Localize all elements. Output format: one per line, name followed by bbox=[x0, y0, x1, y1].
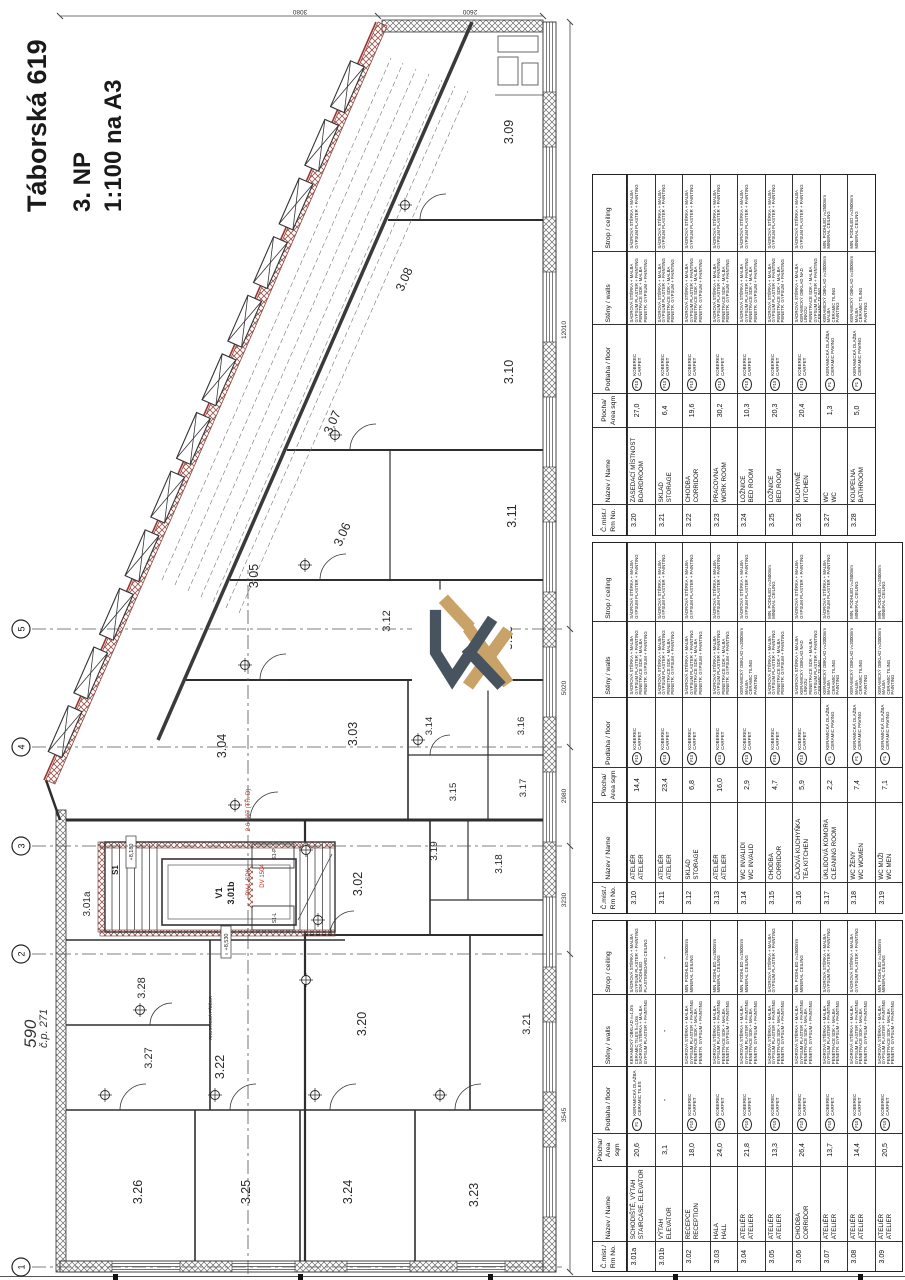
room-name-cell: ZASEDACÍ MÍSTNOSTBOARDROOM bbox=[628, 427, 655, 504]
parcel-cp: č.p. 271 bbox=[39, 1009, 50, 1048]
sheet-crop-mark bbox=[488, 1274, 493, 1280]
column-header: Č.míst./Rm No. bbox=[593, 504, 626, 535]
sheet-crop-mark bbox=[858, 1274, 863, 1280]
floor-finish-cell: F10KOBERECCARPET bbox=[876, 1066, 903, 1133]
svg-text:3.07: 3.07 bbox=[321, 408, 344, 436]
room-name-cell: VÝTAHELEVATOR bbox=[656, 1166, 683, 1241]
floor-code-badge: F10 bbox=[715, 378, 725, 391]
ceiling-finish-cell: MIN. PODHLED v=2500mmMINERAL CEILING bbox=[876, 921, 903, 995]
room-name-cell: SKLADSTORAGE bbox=[683, 802, 710, 882]
floor-code-badge: F10 bbox=[880, 1118, 890, 1131]
svg-text:2980: 2980 bbox=[561, 788, 568, 803]
room-number-cell: 3.14 bbox=[738, 882, 765, 913]
ceiling-finish-cell: MIN. PODHLED v=2500mmMINERAL CEILING bbox=[848, 175, 875, 251]
ceiling-finish-cell: SÁDROVÁ STĚRKA + MALBAGYPSUM PLASTER + P… bbox=[793, 543, 820, 621]
room-name-cell: ATELIÉRATELIER bbox=[766, 1166, 793, 1241]
svg-text:V1: V1 bbox=[214, 887, 224, 898]
room-number-cell: 3.01b bbox=[656, 1241, 683, 1271]
walls-finish-cell: KERAMICKÝ OBKLAD v=1,0mCERAMIC TILES h=1… bbox=[628, 995, 655, 1067]
svg-text:3.16: 3.16 bbox=[516, 717, 527, 736]
column-header: Plocha/Area sqm bbox=[593, 1133, 626, 1166]
room-name-cell: WCWC bbox=[821, 427, 848, 504]
floor-finish-cell: F1KERAMICKÁ DLAŽBACERAMIC PAVING bbox=[821, 324, 848, 392]
table-row: 3.23PRACOVNAWORK ROOM30,2F10KOBERECCARPE… bbox=[710, 175, 738, 535]
floor-code-badge: F10 bbox=[687, 378, 697, 391]
walls-finish-cell: SÁDROVÁ STĚRKA + MALBAGYPSUM PLASTER + P… bbox=[793, 995, 820, 1067]
column-header: Strop / ceiling bbox=[593, 921, 626, 995]
room-number-cell: 3.09 bbox=[876, 1241, 903, 1271]
svg-text:3.04: 3.04 bbox=[215, 734, 229, 758]
column-header: Podlaha / floor bbox=[593, 697, 626, 767]
room-name-cell: ATELIÉRATELIER bbox=[656, 802, 683, 882]
room-area-cell: 13,3 bbox=[766, 1133, 793, 1166]
ceiling-finish-cell: SÁDROVÁ STĚRKA + MALBAGYPSUM PLASTER + P… bbox=[793, 175, 820, 251]
room-number-cell: 3.11 bbox=[656, 882, 683, 913]
ceiling-finish-cell: SÁDROVÁ STĚRKA + MALBAGYPSUM PLASTER + P… bbox=[656, 543, 683, 621]
ceiling-finish-cell: SÁDROVÁ STĚRKA + MALBAGYPSUM PLASTER + P… bbox=[848, 921, 875, 995]
ceiling-finish-cell: - bbox=[656, 921, 683, 995]
ceiling-finish-cell: SÁDROVÁ STĚRKA + MALBAGYPSUM PLASTER + P… bbox=[683, 175, 710, 251]
walls-finish-cell: SÁDROVÁ STĚRKA + MALBAGYPSUM PLASTER + P… bbox=[628, 251, 655, 325]
walls-finish-cell: SÁDROVÁ STĚRKA + MALBAGYPSUM PLASTER + P… bbox=[766, 251, 793, 325]
svg-text:3.08: 3.08 bbox=[393, 265, 416, 293]
svg-text:3.11: 3.11 bbox=[505, 504, 519, 527]
floor-code-badge: F10 bbox=[852, 1118, 862, 1131]
floor-finish-cell: F10KOBERECCARPET bbox=[738, 324, 765, 392]
room-number-cell: 3.26 bbox=[793, 504, 820, 535]
floor-finish-cell: F10KOBERECCARPET bbox=[711, 697, 738, 767]
sheet-crop-mark bbox=[673, 1274, 678, 1280]
svg-text:3.27: 3.27 bbox=[143, 1047, 155, 1068]
svg-text:4: 4 bbox=[17, 744, 27, 749]
table-row: 3.16ČAJOVÁ KUCHYŇKATEA KITCHEN5,9F10KOBE… bbox=[792, 543, 820, 913]
room-area-cell: 6,8 bbox=[683, 767, 710, 802]
table-row: 3.08ATELIÉRATELIER14,4F10KOBERECCARPETSÁ… bbox=[847, 921, 875, 1271]
floor-finish-cell: F10KOBERECCARPET bbox=[766, 1066, 793, 1133]
ceiling-finish-cell: SÁDROVÁ STĚRKA + MALBAGYPSUM PLASTER + P… bbox=[766, 175, 793, 251]
walls-finish-cell: KERAMICKÝ OBKLAD v=2000mmMALBACERAMIC TI… bbox=[738, 621, 765, 697]
svg-text:3.01a: 3.01a bbox=[82, 891, 93, 916]
table-header-row: Č.míst./Rm No.Název / NamePlocha/Area sq… bbox=[593, 175, 627, 535]
column-header: Č.míst./Rm No. bbox=[593, 882, 626, 913]
room-area-cell: 4,7 bbox=[766, 767, 793, 802]
room-area-cell: 7,1 bbox=[876, 767, 903, 802]
room-area-cell: 5,9 bbox=[793, 767, 820, 802]
room-name-cell: PRACOVNAWORK ROOM bbox=[711, 427, 738, 504]
floor-code-badge: F1 bbox=[632, 1118, 642, 1131]
table-row: 3.05ATELIÉRATELIER13,3F10KOBERECCARPETSÁ… bbox=[765, 921, 793, 1271]
floor-code-badge: F1 bbox=[852, 378, 862, 391]
svg-text:+8,530: +8,530 bbox=[224, 934, 230, 951]
floor-finish-cell: F10KOBERECCARPET bbox=[793, 697, 820, 767]
floor-finish-cell: F10KOBERECCARPET bbox=[628, 324, 655, 392]
svg-text:3230: 3230 bbox=[561, 892, 568, 907]
ceiling-finish-cell: MIN. PODHLED v=2500mmMINERAL CEILING bbox=[711, 921, 738, 995]
room-name-cell: CHODBACORRIDOR bbox=[793, 1166, 820, 1241]
floor-finish-cell: F10KOBERECCARPET bbox=[711, 324, 738, 392]
room-number-cell: 3.02 bbox=[683, 1241, 710, 1271]
svg-text:3.25: 3.25 bbox=[239, 1180, 253, 1204]
room-area-cell: 24,0 bbox=[711, 1133, 738, 1166]
room-name-cell: ATELIÉRATELIER bbox=[738, 1166, 765, 1241]
room-number-cell: 3.04 bbox=[738, 1241, 765, 1271]
sheet-crop-mark bbox=[298, 1274, 303, 1280]
floor-finish-cell: F10KOBERECCARPET bbox=[738, 1066, 765, 1133]
svg-text:12010: 12010 bbox=[561, 321, 568, 339]
svg-text:5020: 5020 bbox=[561, 680, 568, 695]
room-area-cell: 20,4 bbox=[793, 393, 820, 427]
room-number-cell: 3.17 bbox=[821, 882, 848, 913]
neighbor-parcel-label: 590 č.p. 271 bbox=[22, 1009, 50, 1048]
room-number-cell: 3.28 bbox=[848, 504, 875, 535]
room-number-cell: 3.19 bbox=[876, 882, 903, 913]
floor-finish-cell: F1KERAMICKÁ DLAŽBACERAMIC PAVING bbox=[821, 697, 848, 767]
room-name-cell: ATELIÉRATELIER bbox=[711, 802, 738, 882]
table-row: 3.18WC ŽENYWC WOMEN7,4F1KERAMICKÁ DLAŽBA… bbox=[847, 543, 875, 913]
walls-finish-cell: SÁDROVÁ STĚRKA + MALBAGYPSUM PLASTER + P… bbox=[766, 621, 793, 697]
room-name-cell: ÚKLIDOVÁ KOMORACLEANING ROOM bbox=[821, 802, 848, 882]
sheet-crop-mark bbox=[113, 1274, 118, 1280]
walls-finish-cell: SÁDROVÁ STĚRKA + MALBAKERAMICKÝ OBKLAD N… bbox=[793, 251, 820, 325]
column-header: Plocha/Area sqm bbox=[593, 393, 626, 427]
walls-finish-cell: KERAMICKÝ OBKLAD v=2000mmMALBACERAMIC TI… bbox=[876, 621, 903, 697]
kv-monogram-logo bbox=[403, 583, 515, 695]
room-name-cell: KUCHYNĚKITCHEN bbox=[793, 427, 820, 504]
walls-finish-cell: SÁDROVÁ STĚRKA + MALBAGYPSUM PLASTER + P… bbox=[821, 995, 848, 1067]
room-name-cell: CHODBACORRIDOR bbox=[766, 802, 793, 882]
floor-code-badge: F10 bbox=[770, 752, 780, 765]
ceiling-finish-cell: MIN. PODHLED v=2500mmMINERAL CEILING bbox=[738, 921, 765, 995]
table-row: 3.28KOUPELNABATHROOM5,0F1KERAMICKÁ DLAŽB… bbox=[847, 175, 875, 535]
room-area-cell: 6,4 bbox=[656, 393, 683, 427]
floor-code-badge: F10 bbox=[660, 378, 670, 391]
floor-finish-cell: F10KOBERECCARPET bbox=[766, 324, 793, 392]
column-header: Strop / ceiling bbox=[593, 175, 626, 251]
room-schedule-table-1: Č.míst./Rm No.Název / NamePlocha/Area sq… bbox=[592, 920, 903, 1272]
drawing-title: Táborská 619 bbox=[22, 39, 53, 212]
room-area-cell: 20,5 bbox=[876, 1133, 903, 1166]
room-area-cell: 26,4 bbox=[793, 1133, 820, 1166]
ceiling-finish-cell: SÁDROVÁ STĚRKA + MALBAGYPSUM PLASTER + P… bbox=[766, 921, 793, 995]
floor-finish-cell: F1KERAMICKÁ DLAŽBACERAMIC PAVING bbox=[848, 324, 875, 392]
svg-text:S1-P: S1-P bbox=[272, 848, 278, 860]
room-name-cell: KOUPELNABATHROOM bbox=[848, 427, 875, 504]
ceiling-finish-cell: SÁDROVÁ STĚRKA + MALBAGYPSUM PLASTER + P… bbox=[683, 543, 710, 621]
table-row: 3.19WC MUŽIWC MEN7,1F1KERAMICKÁ DLAŽBACE… bbox=[875, 543, 903, 913]
room-name-cell: LOŽNICEBED ROOM bbox=[738, 427, 765, 504]
a3-drawing-sheet: 3.263.253.243.233.283.273.223.203.213.02… bbox=[0, 0, 905, 1280]
room-number-cell: 3.21 bbox=[656, 504, 683, 535]
svg-text:S1-L: S1-L bbox=[272, 913, 278, 924]
room-name-cell: RECEPCERECEPTION bbox=[683, 1166, 710, 1241]
walls-finish-cell: SÁDROVÁ STĚRKA + MALBAGYPSUM PLASTER + P… bbox=[656, 621, 683, 697]
floor-code-badge: F10 bbox=[797, 1118, 807, 1131]
floor-code-badge: F10 bbox=[687, 752, 697, 765]
room-area-cell: 30,2 bbox=[711, 393, 738, 427]
ceiling-finish-cell: SÁDROVÁ STĚRKA + MALBAGYPSUM PLASTER + P… bbox=[821, 921, 848, 995]
floor-finish-cell: F10KOBERECCARPET bbox=[656, 324, 683, 392]
room-area-cell: 14,4 bbox=[848, 1133, 875, 1166]
floor-finish-cell: F10KOBERECCARPET bbox=[793, 1066, 820, 1133]
room-number-cell: 3.03 bbox=[711, 1241, 738, 1271]
walls-finish-cell: - bbox=[656, 995, 683, 1067]
floor-code-badge: F10 bbox=[742, 1118, 752, 1131]
walls-finish-cell: KERAMICKÝ OBKLAD v=2000mmMALBACERAMIC TI… bbox=[821, 251, 848, 325]
room-area-cell: 13,7 bbox=[821, 1133, 848, 1166]
room-area-cell: 19,6 bbox=[683, 393, 710, 427]
room-number-cell: 3.27 bbox=[821, 504, 848, 535]
floor-finish-cell: - bbox=[656, 1066, 683, 1133]
room-area-cell: 21,8 bbox=[738, 1133, 765, 1166]
walls-finish-cell: SÁDROVÁ STĚRKA + MALBAGYPSUM PLASTER + P… bbox=[683, 251, 710, 325]
column-header: Strop / ceiling bbox=[593, 543, 626, 621]
walls-finish-cell: SÁDROVÁ STĚRKA + MALBAGYPSUM PLASTER + P… bbox=[738, 251, 765, 325]
svg-text:3.24: 3.24 bbox=[341, 1180, 355, 1204]
svg-text:3.22: 3.22 bbox=[213, 1055, 227, 1079]
room-area-cell: 2,9 bbox=[738, 767, 765, 802]
column-header: Název / Name bbox=[593, 802, 626, 882]
ceiling-finish-cell: MIN. PODHLED v=2500mmMINERAL CEILING bbox=[793, 921, 820, 995]
svg-text:3.10: 3.10 bbox=[502, 360, 516, 384]
svg-text:3545: 3545 bbox=[561, 1107, 568, 1122]
room-number-cell: 3.13 bbox=[711, 882, 738, 913]
table-row: 3.03HALAHALL24,0F10KOBERECCARPETSÁDROVÁ … bbox=[710, 921, 738, 1271]
walls-finish-cell: SÁDROVÁ STĚRKA + MALBAKERAMICKÝ OBKLAD N… bbox=[793, 621, 820, 697]
room-name-cell: ATELIÉRATELIER bbox=[628, 802, 655, 882]
svg-text:2: 2 bbox=[17, 951, 27, 956]
room-area-cell: 7,4 bbox=[848, 767, 875, 802]
walls-finish-cell: SÁDROVÁ STĚRKA + MALBAGYPSUM PLASTER + P… bbox=[683, 995, 710, 1067]
svg-text:S1: S1 bbox=[111, 865, 120, 875]
room-name-cell: SCHODIŠTĚ, VÝTAHSTAIRCASE, ELEVATOR bbox=[628, 1166, 655, 1241]
floor-code-badge: F10 bbox=[797, 752, 807, 765]
floor-finish-cell: F10KOBERECCARPET bbox=[711, 1066, 738, 1133]
walls-finish-cell: SÁDROVÁ STĚRKA + MALBAGYPSUM PLASTER + P… bbox=[876, 995, 903, 1067]
room-area-cell: 18,0 bbox=[683, 1133, 710, 1166]
svg-text:AKUSTICKÁ PŘÍČKA: AKUSTICKÁ PŘÍČKA bbox=[206, 996, 213, 1040]
ceiling-finish-cell: MIN. PODHLED v=2500mmMINERAL CEILING bbox=[766, 543, 793, 621]
room-name-cell: CHODBACORRIDOR bbox=[683, 427, 710, 504]
svg-text:DV 1504: DV 1504 bbox=[260, 864, 266, 888]
walls-finish-cell: SÁDROVÁ STĚRKA + MALBAGYPSUM PLASTER + P… bbox=[656, 251, 683, 325]
room-area-cell: 20,6 bbox=[628, 1133, 655, 1166]
svg-text:3.23: 3.23 bbox=[467, 1183, 481, 1207]
table-row: 3.04ATELIÉRATELIER21,8F10KOBERECCARPETSÁ… bbox=[737, 921, 765, 1271]
svg-text:3.03: 3.03 bbox=[346, 722, 360, 746]
room-area-cell: 27,0 bbox=[628, 393, 655, 427]
table-row: 3.25LOŽNICEBED ROOM20,3F10KOBERECCARPETS… bbox=[765, 175, 793, 535]
floor-code-badge: F10 bbox=[742, 752, 752, 765]
svg-text:3: 3 bbox=[17, 843, 27, 848]
room-number-cell: 3.15 bbox=[766, 882, 793, 913]
floor-finish-cell: F10KOBERECCARPET bbox=[628, 697, 655, 767]
ceiling-finish-cell: SÁDROVÁ STĚRKA + MALBAGYPSUM PLASTER + P… bbox=[738, 543, 765, 621]
svg-text:2600: 2600 bbox=[462, 8, 477, 15]
walls-finish-cell: SÁDROVÁ STĚRKA + MALBAGYPSUM PLASTER + P… bbox=[683, 621, 710, 697]
table-row: 3.09ATELIÉRATELIER20,5F10KOBERECCARPETSÁ… bbox=[875, 921, 903, 1271]
floor-code-badge: F10 bbox=[742, 378, 752, 391]
floor-finish-cell: F10KOBERECCARPET bbox=[848, 1066, 875, 1133]
walls-finish-cell: KERAMICKÝ OBKLAD v=2000mmMALBACERAMIC TI… bbox=[821, 621, 848, 697]
floor-code-badge: F1 bbox=[852, 752, 862, 765]
room-area-cell: 23,4 bbox=[656, 767, 683, 802]
floor-finish-cell: F10KOBERECCARPET bbox=[793, 324, 820, 392]
floor-code-badge: F10 bbox=[632, 752, 642, 765]
table-row: 3.17ÚKLIDOVÁ KOMORACLEANING ROOM2,2F1KER… bbox=[820, 543, 848, 913]
title-block: Táborská 619 3. NP 1:100 na A3 bbox=[22, 39, 128, 212]
ceiling-finish-cell: SÁDROVÁ STĚRKA + MALBAGYPSUM PLASTER + P… bbox=[628, 543, 655, 621]
svg-text:3.19: 3.19 bbox=[429, 841, 440, 861]
room-number-cell: 3.12 bbox=[683, 882, 710, 913]
room-name-cell: ATELIÉRATELIER bbox=[876, 1166, 903, 1241]
floor-code-badge: F10 bbox=[715, 752, 725, 765]
walls-finish-cell: SÁDROVÁ STĚRKA + MALBAGYPSUM PLASTER + P… bbox=[711, 251, 738, 325]
column-header: Podlaha / floor bbox=[593, 1066, 626, 1133]
ceiling-finish-cell: MIN. PODHLED v=2500mmMINERAL CEILING bbox=[848, 543, 875, 621]
ceiling-finish-cell: SÁDROVÁ STĚRKA + MALBAGYPSUM PLASTER + P… bbox=[656, 175, 683, 251]
room-name-cell: WC ŽENYWC WOMEN bbox=[848, 802, 875, 882]
room-schedule-table-2: Č.míst./Rm No.Název / NamePlocha/Area sq… bbox=[592, 542, 903, 914]
ceiling-finish-cell: SÁDROVÁ STĚRKA + MALBAGYPSUM PLASTER + P… bbox=[738, 175, 765, 251]
table-row: 3.20ZASEDACÍ MÍSTNOSTBOARDROOM27,0F10KOB… bbox=[627, 175, 655, 535]
walls-finish-cell: SÁDROVÁ STĚRKA + MALBAGYPSUM PLASTER + P… bbox=[738, 995, 765, 1067]
floor-finish-cell: F10KOBERECCARPET bbox=[683, 324, 710, 392]
room-number-cell: 3.05 bbox=[766, 1241, 793, 1271]
room-number-cell: 3.20 bbox=[628, 504, 655, 535]
parcel-number: 590 bbox=[22, 1009, 39, 1048]
room-number-cell: 3.06 bbox=[793, 1241, 820, 1271]
floor-finish-cell: F1KERAMICKÁ DLAŽBACERAMIC TILES bbox=[628, 1066, 655, 1133]
svg-text:3.20: 3.20 bbox=[355, 1012, 369, 1036]
walls-finish-cell: SÁDROVÁ STĚRKA + MALBAGYPSUM PLASTER + P… bbox=[766, 995, 793, 1067]
ceiling-finish-cell: SÁDROVÁ STĚRKA + MALBAGYPSUM PLASTER + P… bbox=[628, 921, 655, 995]
room-name-cell: ATELIÉRATELIER bbox=[848, 1166, 875, 1241]
room-number-cell: 3.18 bbox=[848, 882, 875, 913]
column-header: Stěny / walls bbox=[593, 995, 626, 1067]
svg-text:1: 1 bbox=[17, 1264, 27, 1269]
column-header: Podlaha / floor bbox=[593, 324, 626, 392]
svg-text:3.18: 3.18 bbox=[494, 854, 505, 874]
table-row: 3.10ATELIÉRATELIER14,4F10KOBERECCARPETSÁ… bbox=[627, 543, 655, 913]
room-number-cell: 3.24 bbox=[738, 504, 765, 535]
svg-text:3.14: 3.14 bbox=[424, 717, 435, 736]
table-row: 3.13ATELIÉRATELIER16,0F10KOBERECCARPETSÁ… bbox=[710, 543, 738, 913]
floor-finish-cell: F10KOBERECCARPET bbox=[766, 697, 793, 767]
table-row: 3.22CHODBACORRIDOR19,6F10KOBERECCARPETSÁ… bbox=[682, 175, 710, 535]
walls-finish-cell: SÁDROVÁ STĚRKA + MALBAGYPSUM PLASTER + P… bbox=[711, 995, 738, 1067]
room-area-cell: 20,3 bbox=[766, 393, 793, 427]
room-area-cell: 3,1 bbox=[656, 1133, 683, 1166]
floor-finish-cell: F1KERAMICKÁ DLAŽBACERAMIC PAVING bbox=[848, 697, 875, 767]
room-name-cell: LOŽNICEBED ROOM bbox=[766, 427, 793, 504]
room-name-cell: WC MUŽIWC MEN bbox=[876, 802, 903, 882]
floor-code-badge: F10 bbox=[660, 752, 670, 765]
ceiling-finish-cell: MIN. PODHLED v=2500mmMINERAL CEILING bbox=[821, 175, 848, 251]
table-row: 3.11ATELIÉRATELIER23,4F10KOBERECCARPETSÁ… bbox=[655, 543, 683, 913]
svg-text:3.02: 3.02 bbox=[351, 872, 365, 896]
room-schedule-table-3: Č.míst./Rm No.Název / NamePlocha/Area sq… bbox=[592, 174, 876, 536]
floor-finish-cell: F10KOBERECCARPET bbox=[738, 697, 765, 767]
svg-text:3.01b: 3.01b bbox=[226, 881, 236, 905]
table-row: 3.07ATELIÉRATELIER13,7F10KOBERECCARPETSÁ… bbox=[820, 921, 848, 1271]
room-name-cell: ATELIÉRATELIER bbox=[821, 1166, 848, 1241]
room-name-cell: HALAHALL bbox=[711, 1166, 738, 1241]
ceiling-finish-cell: SÁDROVÁ STĚRKA + MALBAGYPSUM PLASTER + P… bbox=[711, 175, 738, 251]
walls-finish-cell: KERAMICKÝ OBKLAD v=2000mmMALBACERAMIC TI… bbox=[848, 621, 875, 697]
room-number-cell: 3.07 bbox=[821, 1241, 848, 1271]
drawing-sheet-viewport: 3.263.253.243.233.283.273.223.203.213.02… bbox=[0, 0, 905, 1280]
drawing-scale: 1:100 na A3 bbox=[100, 39, 128, 212]
walls-finish-cell: SÁDROVÁ STĚRKA + MALBAGYPSUM PLASTER + P… bbox=[848, 995, 875, 1067]
svg-text:3.21: 3.21 bbox=[521, 1013, 533, 1034]
svg-text:3.09: 3.09 bbox=[502, 120, 516, 144]
table-row: 3.01aSCHODIŠTĚ, VÝTAHSTAIRCASE, ELEVATOR… bbox=[627, 921, 655, 1271]
room-number-cell: 3.08 bbox=[848, 1241, 875, 1271]
floor-finish-cell: F10KOBERECCARPET bbox=[656, 697, 683, 767]
room-name-cell: ČAJOVÁ KUCHYŇKATEA KITCHEN bbox=[793, 802, 820, 882]
floor-finish-cell: F10KOBERECCARPET bbox=[683, 697, 710, 767]
table-row: 3.27WCWC1,3F1KERAMICKÁ DLAŽBACERAMIC PAV… bbox=[820, 175, 848, 535]
walls-finish-cell: SÁDROVÁ STĚRKA + MALBAGYPSUM PLASTER + P… bbox=[628, 621, 655, 697]
table-row: 3.12SKLADSTORAGE6,8F10KOBERECCARPETSÁDRO… bbox=[682, 543, 710, 913]
floor-code-badge: F10 bbox=[825, 1118, 835, 1131]
ceiling-finish-cell: SÁDROVÁ STĚRKA + MALBAGYPSUM PLASTER + P… bbox=[628, 175, 655, 251]
svg-text:3.15: 3.15 bbox=[448, 783, 459, 802]
floor-code-badge: F1 bbox=[880, 752, 890, 765]
room-area-cell: 2,2 bbox=[821, 767, 848, 802]
floor-finish-cell: F10KOBERECCARPET bbox=[821, 1066, 848, 1133]
drawing-floor: 3. NP bbox=[69, 39, 97, 212]
svg-text:3.26: 3.26 bbox=[131, 1180, 145, 1204]
room-number-cell: 3.16 bbox=[793, 882, 820, 913]
column-header: Plocha/Area sqm bbox=[593, 767, 626, 802]
room-area-cell: 10,3 bbox=[738, 393, 765, 427]
svg-text:5: 5 bbox=[17, 626, 27, 631]
svg-text:3.05: 3.05 bbox=[247, 564, 261, 588]
room-number-cell: 3.23 bbox=[711, 504, 738, 535]
floor-finish-cell: F10KOBERECCARPET bbox=[683, 1066, 710, 1133]
ceiling-finish-cell: SÁDROVÁ STĚRKA + MALBAGYPSUM PLASTER + P… bbox=[821, 543, 848, 621]
room-area-cell: 1,3 bbox=[821, 393, 848, 427]
walls-finish-cell: KERAMICKÝ OBKLAD v=2000mmMALBACERAMIC TI… bbox=[848, 251, 875, 325]
floor-code-badge: F10 bbox=[770, 1118, 780, 1131]
table-row: 3.24LOŽNICEBED ROOM10,3F10KOBERECCARPETS… bbox=[737, 175, 765, 535]
svg-text:3.28: 3.28 bbox=[136, 977, 148, 998]
table-row: 3.21SKLADSTORAGE6,4F10KOBERECCARPETSÁDRO… bbox=[655, 175, 683, 535]
svg-text:3080: 3080 bbox=[292, 8, 307, 15]
room-area-cell: 16,0 bbox=[711, 767, 738, 802]
floor-code-badge: F10 bbox=[797, 378, 807, 391]
room-number-cell: 3.01a bbox=[628, 1241, 655, 1271]
floor-finish-cell: F1KERAMICKÁ DLAŽBACERAMIC PAVING bbox=[876, 697, 903, 767]
floor-code-badge: F10 bbox=[632, 378, 642, 391]
column-header: Stěny / walls bbox=[593, 251, 626, 325]
room-name-cell: SKLADSTORAGE bbox=[656, 427, 683, 504]
floor-code-badge: F10 bbox=[770, 378, 780, 391]
svg-text:3.12: 3.12 bbox=[381, 610, 393, 631]
column-header: Stěny / walls bbox=[593, 621, 626, 697]
floor-code-badge: F10 bbox=[715, 1118, 725, 1131]
ceiling-finish-cell: SÁDROVÁ STĚRKA + MALBAGYPSUM PLASTER + P… bbox=[711, 543, 738, 621]
table-row: 3.01bVÝTAHELEVATOR3,1--- bbox=[655, 921, 683, 1271]
table-row: 3.02RECEPCERECEPTION18,0F10KOBERECCARPET… bbox=[682, 921, 710, 1271]
table-row: 3.14WC INVALIDIWC INVALID2,9F10KOBERECCA… bbox=[737, 543, 765, 913]
table-row: 3.06CHODBACORRIDOR26,4F10KOBERECCARPETSÁ… bbox=[792, 921, 820, 1271]
column-header: Název / Name bbox=[593, 427, 626, 504]
table-header-row: Č.míst./Rm No.Název / NamePlocha/Area sq… bbox=[593, 921, 627, 1271]
column-header: Č.míst./Rm No. bbox=[593, 1241, 626, 1271]
ceiling-finish-cell: MIN. PODHLED v=2500mmMINERAL CEILING bbox=[683, 921, 710, 995]
